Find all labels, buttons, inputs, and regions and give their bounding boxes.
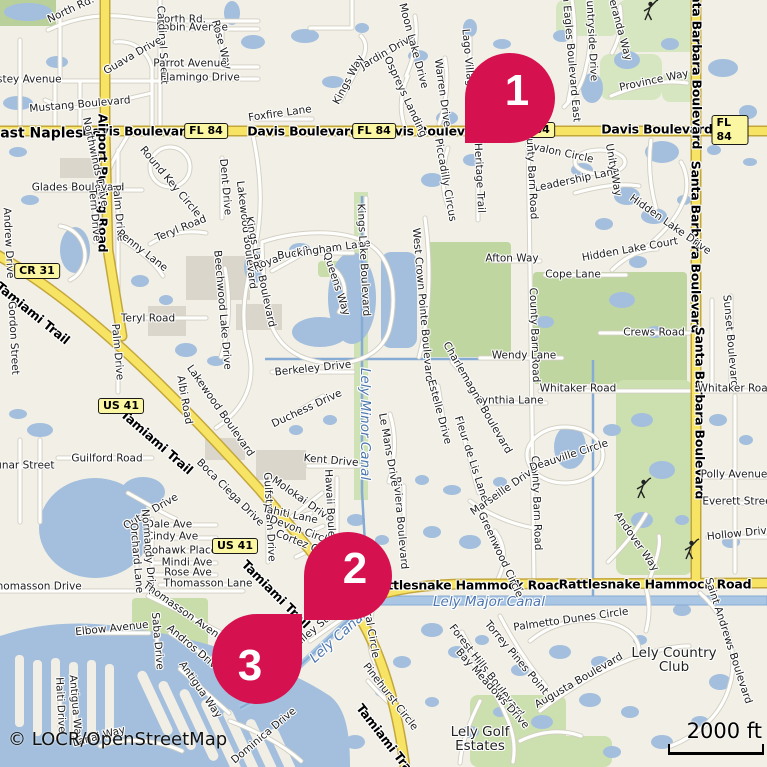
- scale-bar: 2000 ft: [660, 719, 764, 755]
- map-marker-2[interactable]: 2: [304, 532, 392, 620]
- marker-number: 1: [505, 66, 529, 116]
- scale-bar-line: [668, 744, 764, 755]
- map-marker-3[interactable]: 3: [212, 614, 302, 704]
- attribution: © LOCR/OpenStreetMap: [8, 729, 227, 750]
- scale-bar-label: 2000 ft: [660, 719, 764, 743]
- map-marker-1[interactable]: 1: [465, 53, 555, 143]
- map-viewport[interactable]: East NaplesDavis BoulevardDavis Boulevar…: [0, 0, 767, 767]
- marker-number: 2: [343, 544, 367, 594]
- map-base: [0, 0, 767, 767]
- marker-number: 3: [238, 641, 262, 691]
